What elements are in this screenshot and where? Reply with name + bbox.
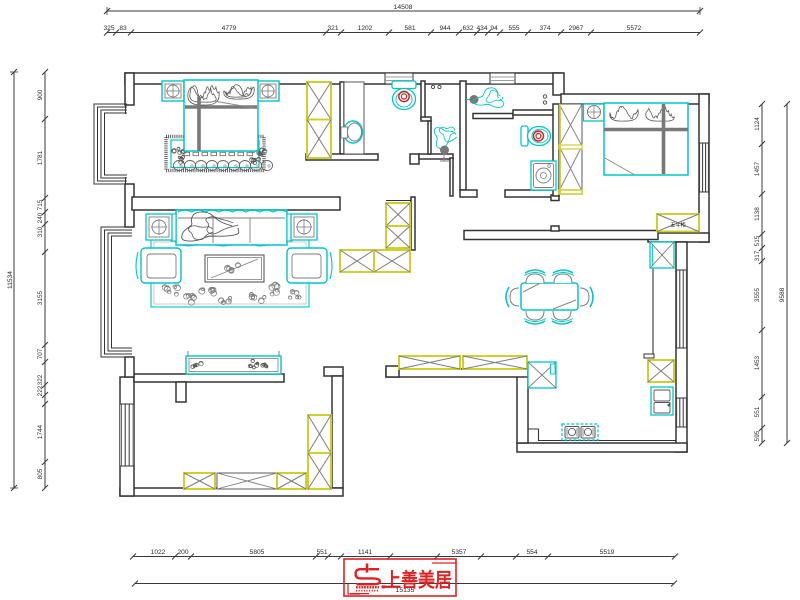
svg-text:715: 715 [37, 199, 44, 210]
svg-text:1141: 1141 [358, 549, 373, 556]
svg-text:5805: 5805 [250, 549, 265, 556]
svg-text:900: 900 [37, 89, 44, 100]
svg-text:5519: 5519 [600, 549, 615, 556]
svg-text:5357: 5357 [452, 549, 467, 556]
svg-text:1744: 1744 [37, 424, 44, 439]
svg-text:14508: 14508 [394, 4, 413, 11]
svg-text:321: 321 [327, 25, 338, 32]
svg-text:94: 94 [490, 25, 498, 32]
svg-text:240: 240 [37, 212, 44, 223]
svg-text:11534: 11534 [7, 271, 14, 289]
svg-text:317: 317 [754, 250, 761, 261]
svg-text:374: 374 [539, 25, 550, 32]
svg-text:222: 222 [37, 385, 44, 396]
svg-text:2967: 2967 [569, 25, 584, 32]
svg-text:310: 310 [37, 226, 44, 237]
svg-text:325: 325 [103, 25, 114, 32]
svg-text:632: 632 [462, 25, 473, 32]
svg-text:上善美居: 上善美居 [384, 569, 452, 592]
svg-text:551: 551 [316, 549, 327, 556]
svg-text:805: 805 [37, 468, 44, 479]
svg-text:1202: 1202 [358, 25, 373, 32]
svg-text:707: 707 [37, 348, 44, 359]
svg-text:1138: 1138 [754, 207, 761, 221]
svg-text:1457: 1457 [754, 161, 761, 176]
svg-text:3155: 3155 [37, 290, 44, 305]
svg-text:1022: 1022 [151, 549, 166, 556]
svg-text:200: 200 [177, 549, 188, 556]
svg-text:1453: 1453 [754, 355, 761, 370]
svg-text:554: 554 [526, 549, 537, 556]
svg-text:944: 944 [439, 25, 450, 32]
svg-text:551: 551 [754, 406, 761, 417]
svg-text:1781: 1781 [37, 150, 44, 165]
svg-text:5572: 5572 [627, 25, 642, 32]
svg-text:五斗柜: 五斗柜 [670, 221, 686, 229]
svg-text:83: 83 [119, 25, 127, 32]
svg-text:4779: 4779 [222, 25, 237, 32]
svg-text:3555: 3555 [754, 287, 761, 302]
svg-text:515: 515 [754, 235, 761, 246]
svg-text:555: 555 [508, 25, 519, 32]
svg-text:595: 595 [754, 430, 761, 441]
svg-text:9588: 9588 [779, 287, 786, 302]
svg-text:1124: 1124 [754, 117, 761, 131]
svg-text:581: 581 [404, 25, 415, 32]
svg-text:322: 322 [37, 374, 44, 385]
svg-text:434: 434 [476, 25, 487, 32]
